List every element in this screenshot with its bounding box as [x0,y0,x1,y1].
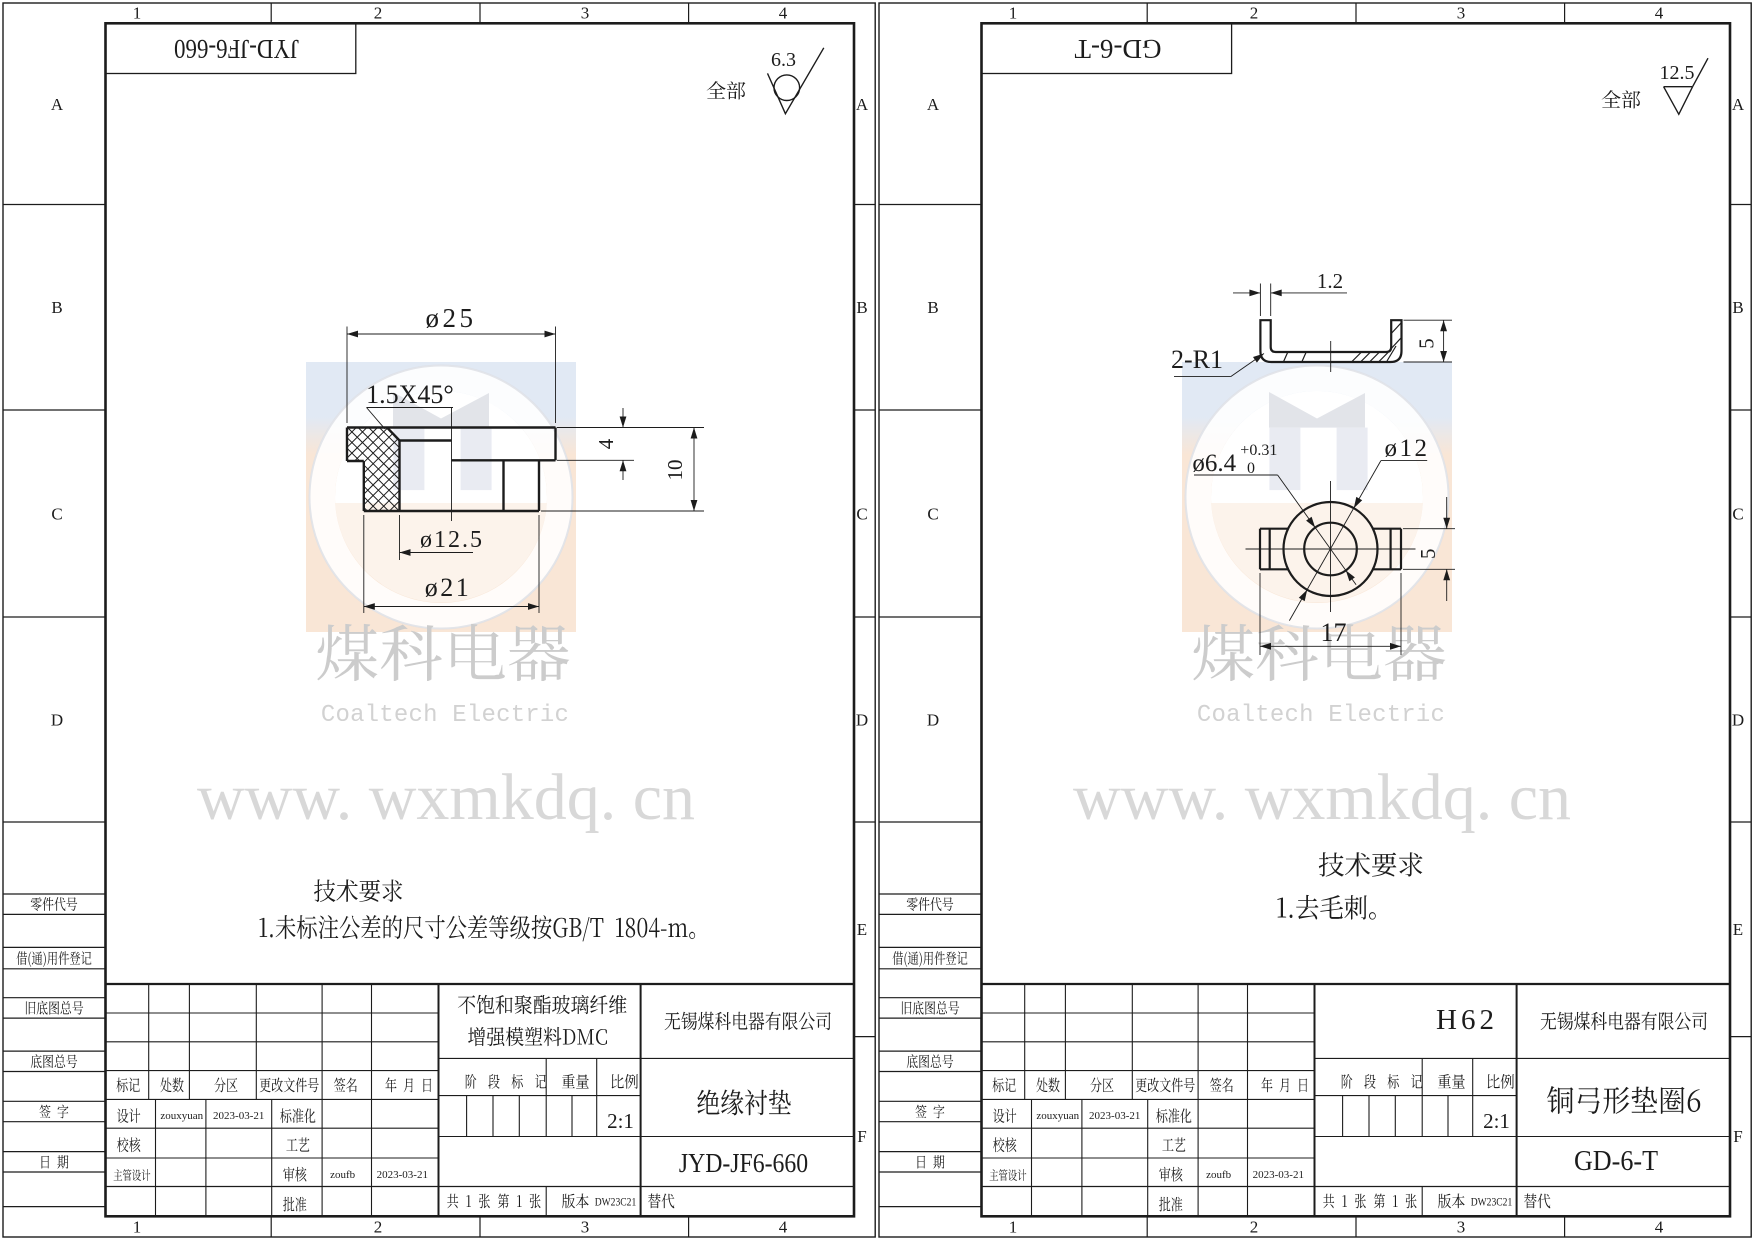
svg-text:10: 10 [663,460,687,481]
svg-text:ø25: ø25 [426,303,477,333]
svg-text:GD-6-T: GD-6-T [1574,1144,1658,1177]
svg-text:GD-6-T: GD-6-T [1074,34,1161,64]
svg-text:12.5: 12.5 [1660,62,1695,84]
svg-text:ø21: ø21 [425,573,472,602]
svg-text:4: 4 [594,438,618,449]
svg-text:H62: H62 [1436,1004,1498,1036]
svg-text:2-R1: 2-R1 [1171,345,1223,374]
svg-text:1.5X45°: 1.5X45° [366,380,454,409]
svg-text:5: 5 [1415,338,1439,349]
svg-text:5: 5 [1416,549,1440,560]
svg-text:ø12: ø12 [1385,435,1430,462]
svg-text:17: 17 [1321,618,1347,647]
svg-text:1.2: 1.2 [1317,269,1343,293]
svg-text:6.3: 6.3 [771,49,796,71]
svg-text:0: 0 [1247,460,1255,477]
svg-text:JYD-JF6-660: JYD-JF6-660 [679,1148,808,1179]
svg-text:+0.31: +0.31 [1240,442,1277,459]
svg-text:ø6.4: ø6.4 [1192,450,1236,477]
svg-text:ø12.5: ø12.5 [420,527,484,553]
svg-text:JYD-JF6-660: JYD-JF6-660 [174,34,299,63]
